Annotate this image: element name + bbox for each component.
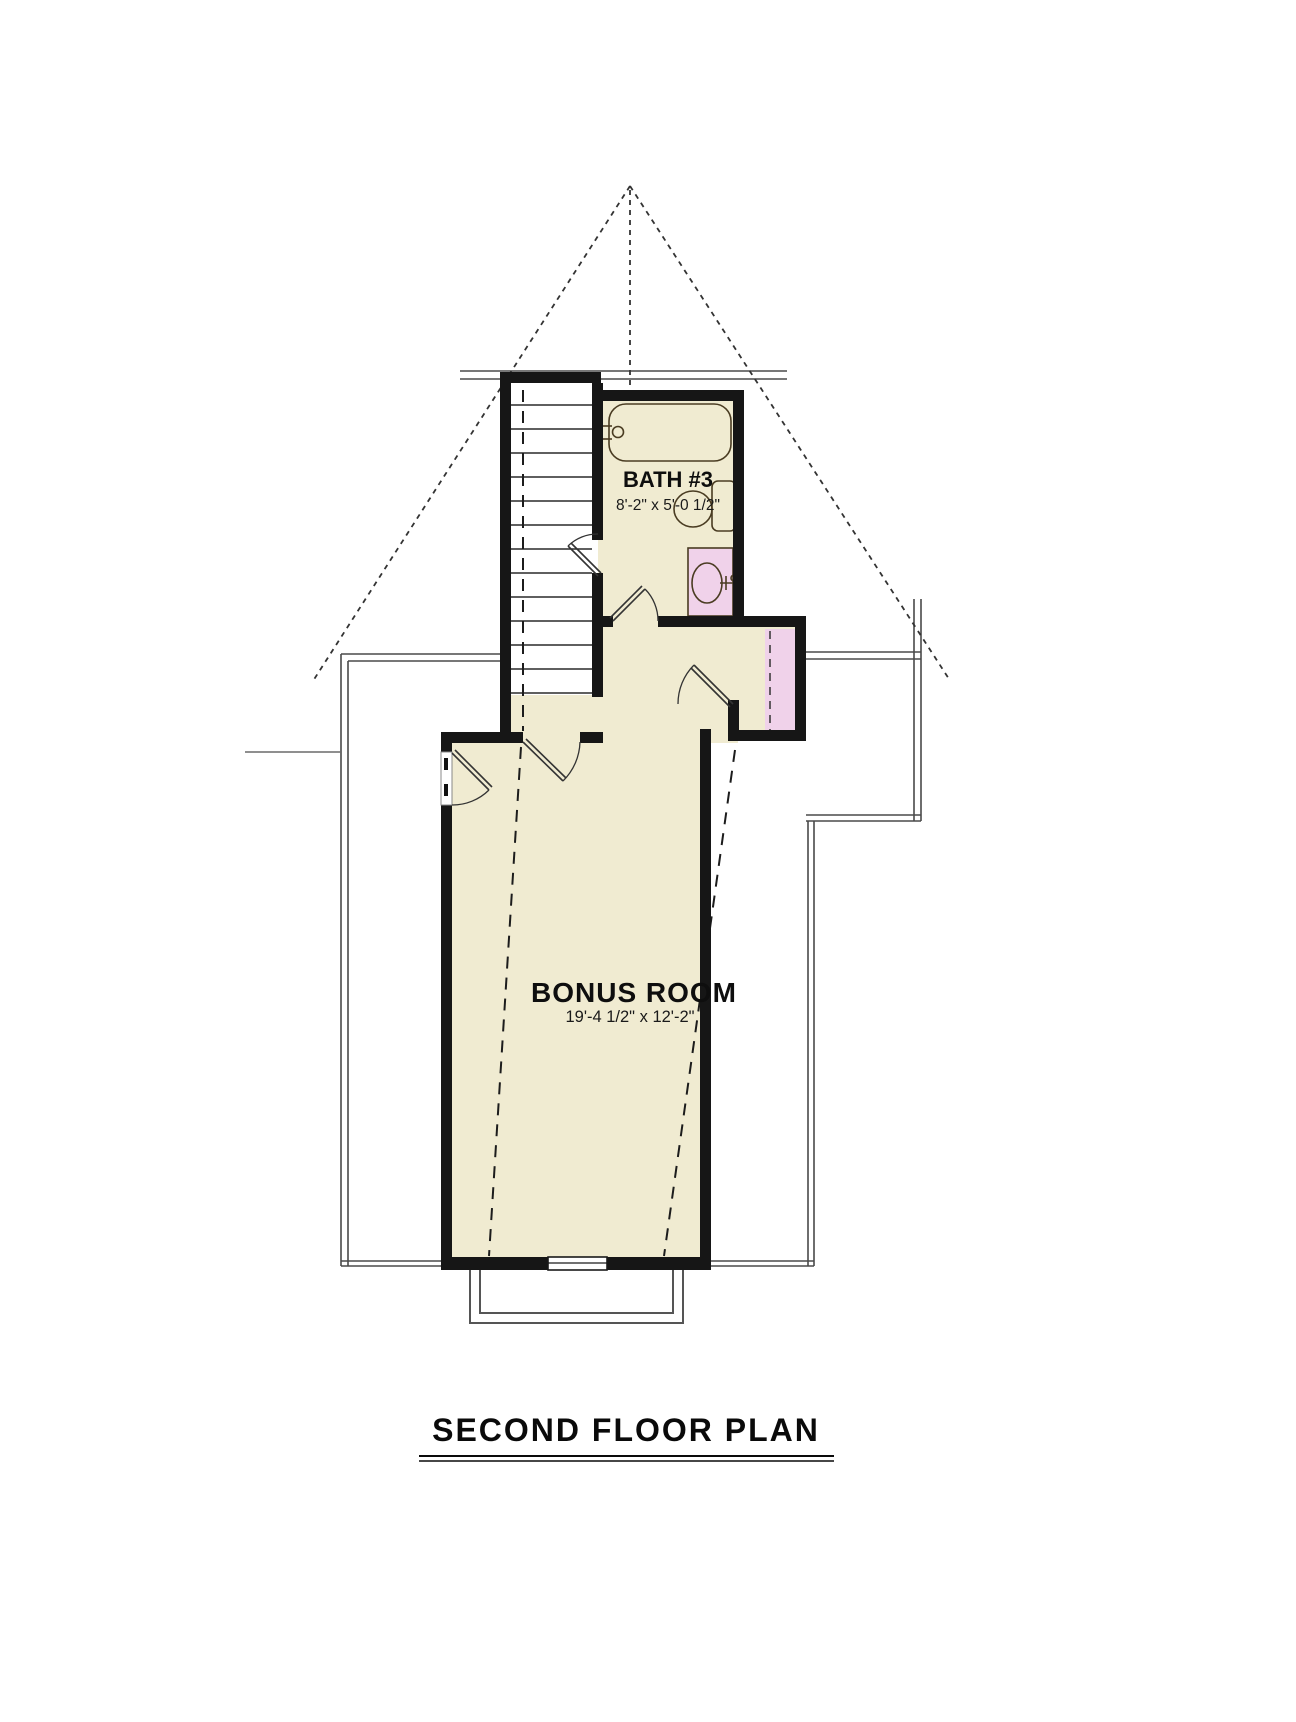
stair-right-wall-lower: [592, 573, 603, 697]
bath-room-dimensions: 8'-2" x 5'-0 1/2": [616, 497, 720, 514]
bonus-room-label: BONUS ROOM: [531, 977, 737, 1008]
bonus-left-wall-upper: [441, 732, 452, 752]
staircase: [506, 377, 598, 731]
closet-right-wall: [795, 627, 806, 741]
bonus-room-dimensions: 19'-4 1/2" x 12'-2": [565, 1008, 694, 1026]
title-underline: [419, 1456, 834, 1461]
floor-plan: BATH #3 8'-2" x 5'-0 1/2" BONUS ROOM 19'…: [0, 0, 1296, 1722]
dormer-outline: [470, 1270, 683, 1323]
bonus-bottom-wall-right: [607, 1257, 711, 1270]
sink-vanity: [688, 548, 737, 616]
bath-top-wall: [592, 390, 744, 401]
bottom-window: [548, 1257, 607, 1270]
bonus-top-wall-left: [441, 732, 523, 743]
bonus-left-wall-lower: [441, 805, 452, 1270]
stair-top-wall: [500, 372, 601, 383]
bonus-bottom-wall-left: [441, 1257, 548, 1270]
closet-bottom-wall: [739, 730, 806, 741]
bath-right-wall: [733, 390, 744, 621]
bath-room-label: BATH #3: [623, 467, 713, 492]
closet: [765, 629, 795, 739]
stair-right-wall-upper: [592, 383, 603, 540]
floor-plan-drawing: BATH #3 8'-2" x 5'-0 1/2" BONUS ROOM 19'…: [0, 0, 1296, 1722]
bath-bottom-wall-right: [658, 616, 806, 627]
bonus-top-wall-right: [580, 732, 603, 743]
stair-left-wall: [500, 372, 511, 743]
plan-title: SECOND FLOOR PLAN: [432, 1412, 820, 1448]
